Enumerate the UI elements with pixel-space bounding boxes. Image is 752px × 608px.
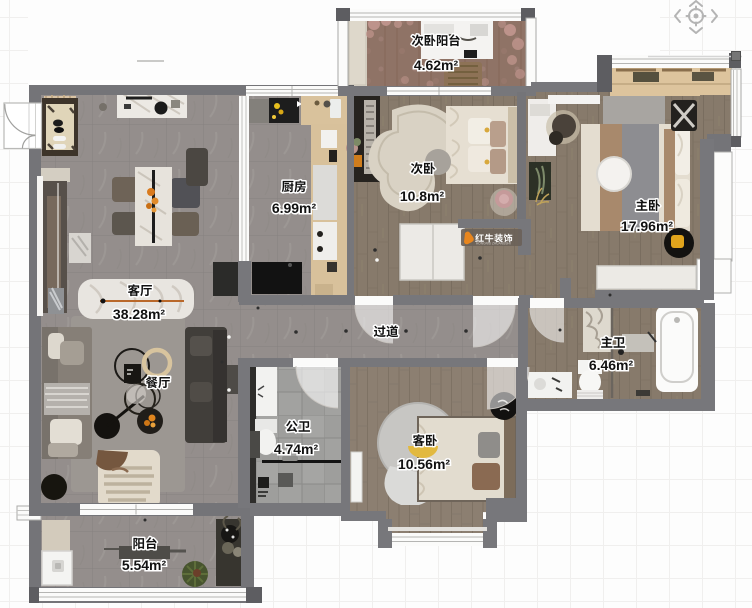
svg-text:HONGNIU ZHUANGSHI: HONGNIU ZHUANGSHI [476, 242, 511, 246]
svg-text:4.62m²: 4.62m² [414, 57, 459, 73]
svg-text:4.74m²: 4.74m² [274, 441, 319, 457]
svg-text:6.46m²: 6.46m² [589, 357, 634, 373]
svg-text:6.99m²: 6.99m² [272, 200, 317, 216]
svg-text:17.96m²: 17.96m² [621, 218, 673, 234]
svg-text:10.8m²: 10.8m² [400, 188, 445, 204]
svg-text:10.56m²: 10.56m² [398, 456, 450, 472]
svg-text:38.28m²: 38.28m² [113, 306, 165, 322]
svg-text:5.54m²: 5.54m² [122, 557, 167, 573]
